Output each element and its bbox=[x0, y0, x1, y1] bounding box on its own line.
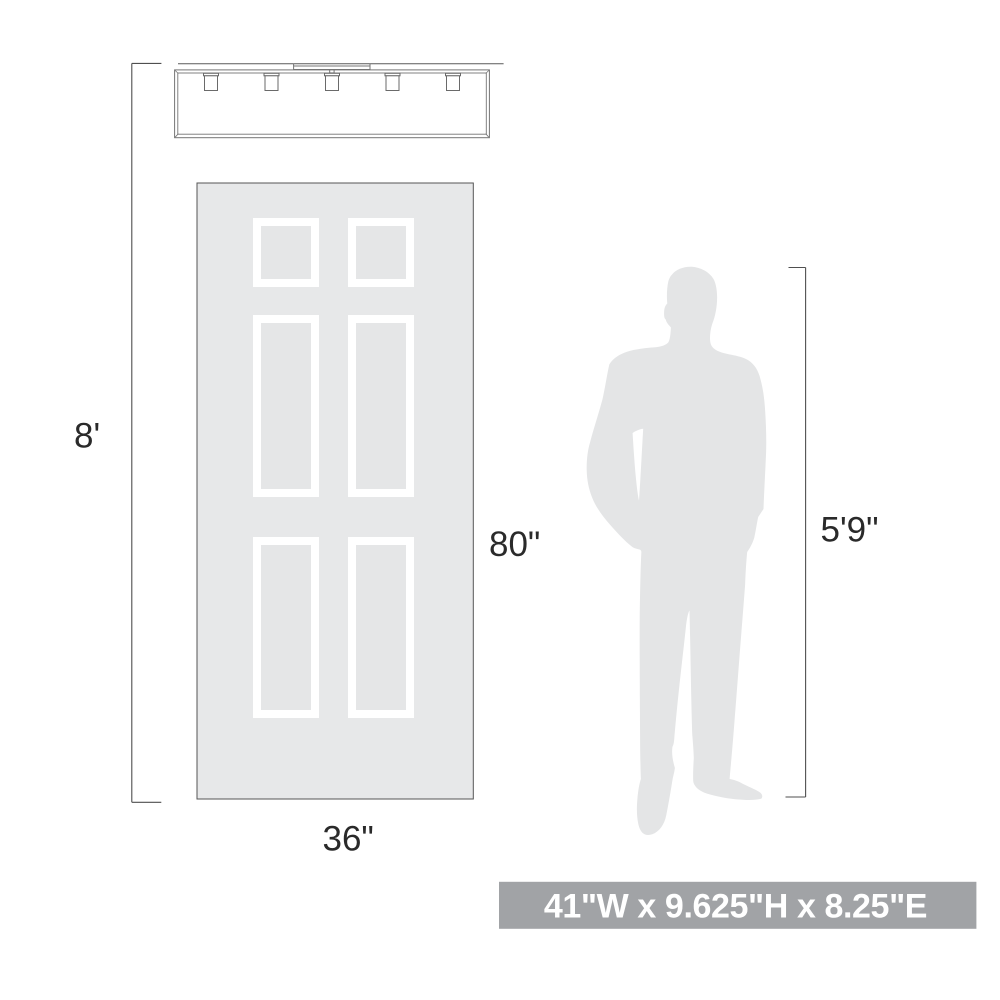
svg-text:80": 80" bbox=[489, 525, 540, 564]
svg-text:8': 8' bbox=[74, 416, 100, 455]
svg-text:36": 36" bbox=[323, 820, 374, 859]
svg-text:5'9": 5'9" bbox=[821, 511, 879, 550]
svg-text:41"W x 9.625"H x 8.25"E: 41"W x 9.625"H x 8.25"E bbox=[544, 888, 927, 926]
